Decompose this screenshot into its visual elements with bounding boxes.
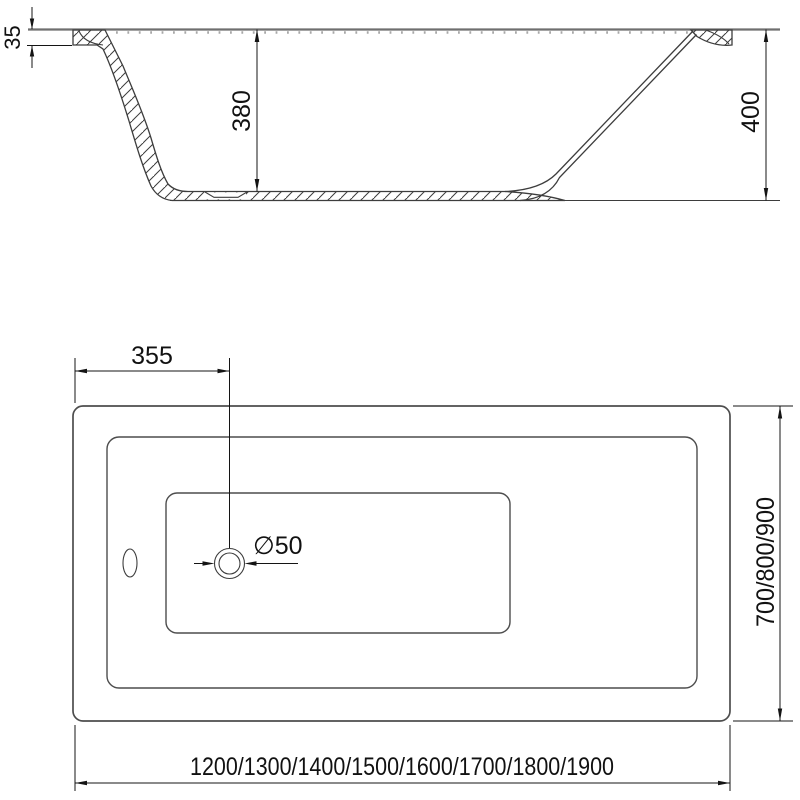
arrow-down-icon — [764, 188, 768, 201]
arrow-left-icon — [75, 369, 87, 374]
dim-drain-diameter: ∅50 — [194, 532, 303, 566]
dim-drain-offset: 355 — [75, 342, 230, 548]
arrow-right-icon — [718, 781, 730, 786]
bathtub-technical-drawing: 35 380 400 355 — [0, 0, 800, 800]
dim-width-options-label: 700/800/900 — [752, 497, 780, 627]
side-section-view: 35 380 400 — [0, 7, 780, 201]
dim-rim-thickness-label: 35 — [0, 25, 25, 49]
tub-floor-outline — [166, 493, 510, 633]
arrow-left-icon — [75, 781, 87, 786]
drain-hole-inner — [219, 553, 240, 574]
overflow-hole — [123, 549, 137, 577]
arrow-up-icon — [255, 30, 260, 43]
dim-length-options-label: 1200/1300/1400/1500/1600/1700/1800/1900 — [190, 753, 614, 781]
arrow-down-icon — [778, 709, 782, 722]
dim-drain-offset-label: 355 — [131, 342, 173, 370]
dim-length-options: 1200/1300/1400/1500/1600/1700/1800/1900 — [75, 725, 730, 791]
dim-drain-diameter-label: ∅50 — [253, 532, 303, 560]
dim-overall-height-label: 400 — [737, 91, 765, 133]
dim-rim-thickness: 35 — [0, 7, 72, 68]
arrow-up-icon — [764, 30, 768, 43]
dim-width-options: 700/800/900 — [733, 406, 793, 721]
arrow-right-icon — [218, 369, 230, 374]
backrest-slope-outer-line — [520, 35, 697, 201]
drawing-canvas: 35 380 400 355 — [0, 0, 800, 800]
dim-inner-depth-label: 380 — [228, 90, 256, 132]
arrow-up-icon — [778, 406, 782, 419]
tub-wall-section — [73, 30, 565, 201]
arrow-up-icon — [30, 46, 34, 57]
tub-outer-rim-outline — [73, 406, 730, 721]
dim-inner-depth: 380 — [228, 30, 259, 192]
dim-overall-height: 400 — [737, 30, 768, 201]
arrow-left-icon — [245, 561, 257, 566]
tub-inner-rim-outline — [107, 437, 697, 688]
plan-view: 355 ∅50 700/800/900 1200/1300/1400/1 — [73, 342, 793, 791]
arrow-down-icon — [255, 179, 260, 192]
backrest-slope-inner-line — [505, 31, 693, 192]
arrow-right-icon — [203, 561, 215, 566]
arrow-down-icon — [30, 19, 34, 30]
